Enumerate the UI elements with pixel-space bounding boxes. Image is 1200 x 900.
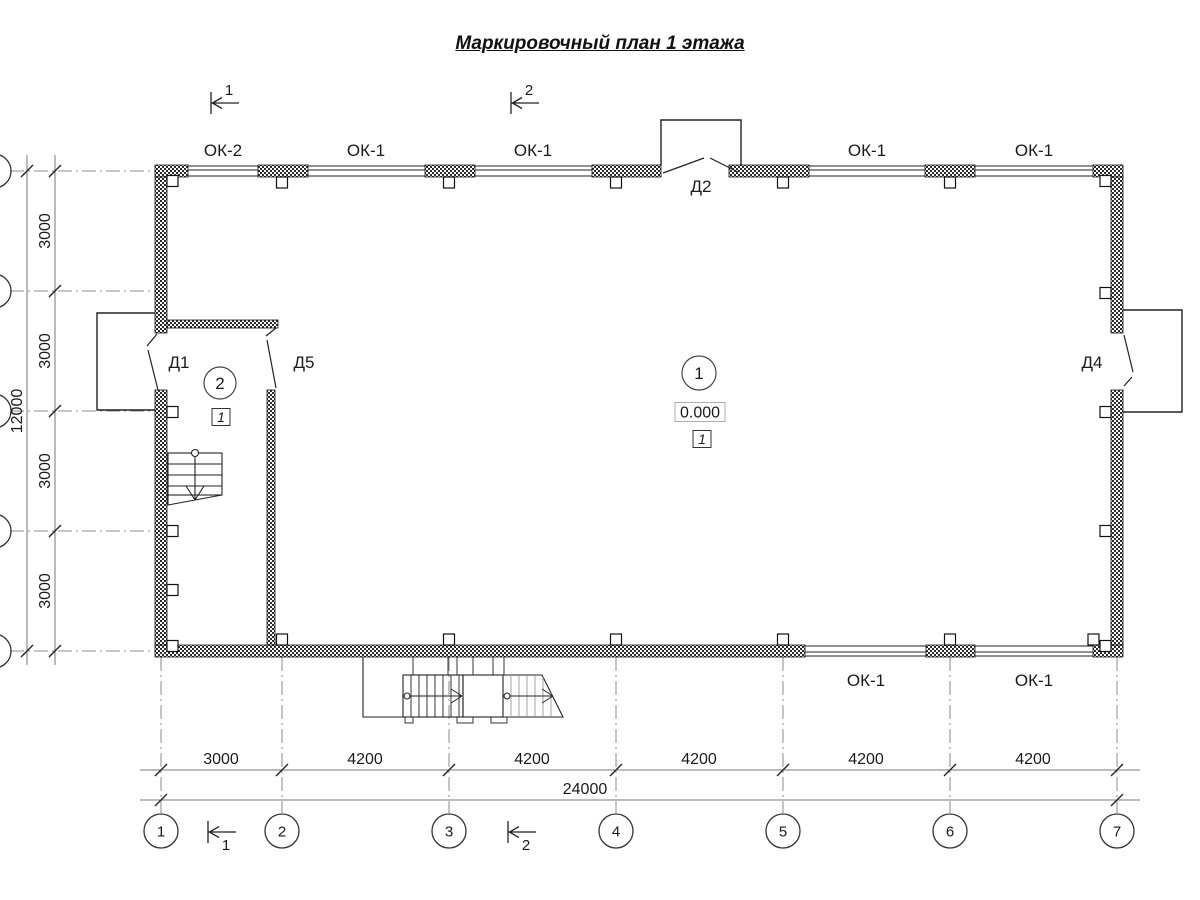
axis-number: 5	[779, 824, 787, 841]
axis-grid-lines	[10, 171, 1117, 813]
exterior-stair	[363, 657, 563, 723]
dimension-value: 4200	[1015, 751, 1051, 768]
dimension-value: 3000	[203, 751, 239, 768]
floor-mark-number: 1	[217, 409, 225, 425]
drawing-sheet: { "title": "Маркировочный план 1 этажа",…	[0, 0, 1200, 900]
stair-down-arrow	[186, 457, 204, 500]
window-label: ОК-1	[1015, 671, 1053, 690]
axis-number: 3	[445, 824, 453, 841]
window-label: ОК-2	[204, 141, 242, 160]
axis-number: 2	[278, 824, 286, 841]
door-d4-leaf	[1124, 335, 1133, 386]
dimension-value: 3000	[37, 453, 54, 489]
dimension-value: 4200	[848, 751, 884, 768]
window-label: ОК-1	[847, 671, 885, 690]
axis-number: 4	[612, 824, 620, 841]
interior-stair	[168, 450, 222, 506]
dimension-value: 3000	[37, 573, 54, 609]
section-mark-number: 1	[222, 837, 230, 854]
dimension-total: 24000	[563, 781, 608, 798]
column-marks	[167, 176, 1111, 652]
room-number: 2	[215, 374, 224, 393]
dimension-value: 4200	[347, 751, 383, 768]
porch-left	[97, 313, 155, 410]
porch-outlines	[97, 120, 1182, 412]
window-label: ОК-1	[347, 141, 385, 160]
axis-number: 7	[1113, 824, 1121, 841]
stair-direction-arrow	[511, 689, 553, 703]
dimension-value: 3000	[37, 333, 54, 369]
dimension-value: 3000	[37, 213, 54, 249]
door-d2-leaf	[663, 158, 738, 173]
room-number: 1	[694, 364, 703, 383]
porch-right	[1123, 310, 1182, 412]
floor-plan-canvas: ОК-2ОК-1ОК-1ОК-1ОК-1ОК-1ОК-1Д2Д1Д5Д4120.…	[0, 0, 1200, 900]
windows	[188, 166, 1093, 656]
door-label: Д2	[691, 177, 712, 196]
axis-number: 1	[157, 824, 165, 841]
door-label: Д5	[294, 353, 315, 372]
elevation-value: 0.000	[680, 405, 720, 422]
window-label: ОК-1	[514, 141, 552, 160]
dimension-lines	[27, 155, 1140, 800]
door-d5-leaf	[266, 328, 276, 388]
dimension-ticks	[21, 165, 1123, 806]
section-mark-number: 2	[522, 837, 530, 854]
window-label: ОК-1	[848, 141, 886, 160]
axis-number: 6	[946, 824, 954, 841]
dimension-value: 4200	[514, 751, 550, 768]
section-mark-number: 2	[525, 82, 533, 99]
annotations: ОК-2ОК-1ОК-1ОК-1ОК-1ОК-1ОК-1Д2Д1Д5Д4120.…	[9, 82, 1134, 854]
door-d1-leaf	[147, 334, 158, 390]
window-label: ОК-1	[1015, 141, 1053, 160]
dimension-total: 12000	[9, 389, 26, 434]
floor-mark-number: 1	[698, 431, 706, 447]
door-label: Д4	[1082, 353, 1103, 372]
door-label: Д1	[169, 353, 190, 372]
section-mark-number: 1	[225, 82, 233, 99]
dimension-value: 4200	[681, 751, 717, 768]
porch-top	[661, 120, 741, 165]
exterior-walls	[155, 165, 1123, 657]
